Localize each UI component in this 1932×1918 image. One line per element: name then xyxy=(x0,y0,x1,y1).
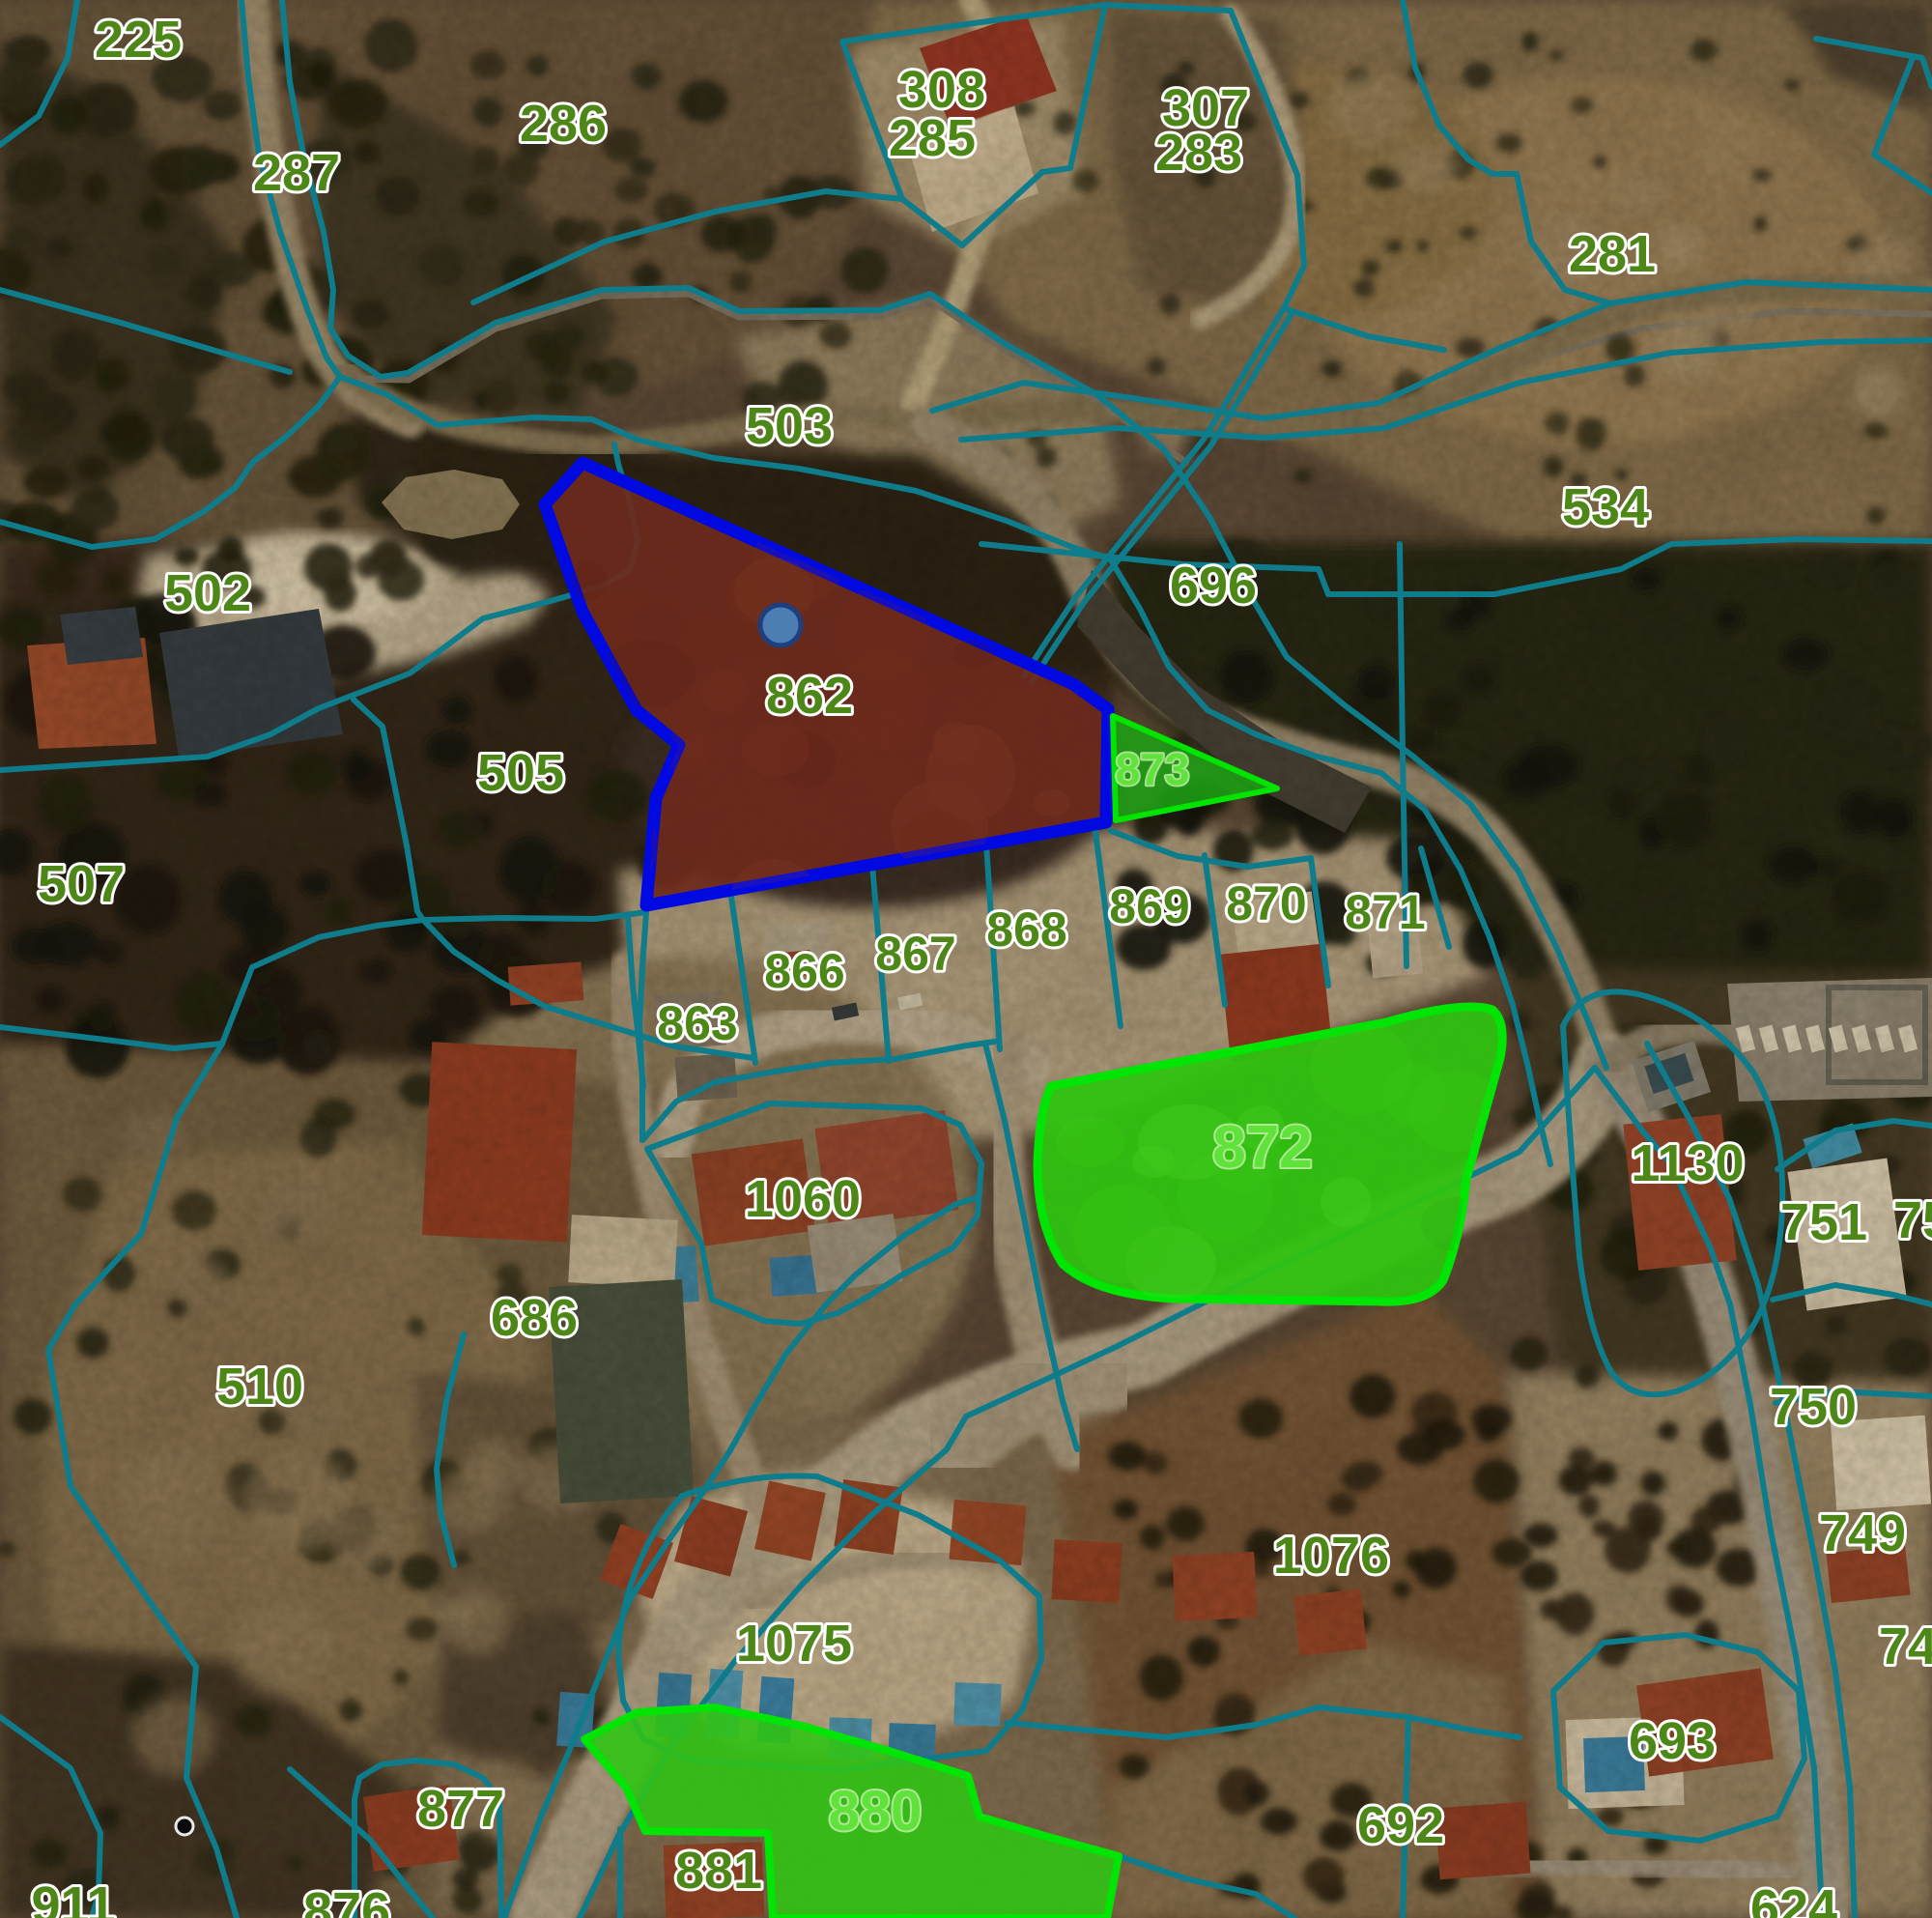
svg-text:869: 869 xyxy=(1109,879,1189,933)
svg-text:868: 868 xyxy=(986,902,1066,957)
svg-text:502: 502 xyxy=(164,564,251,622)
svg-text:867: 867 xyxy=(875,927,955,981)
svg-text:225: 225 xyxy=(95,11,182,69)
svg-text:624: 624 xyxy=(1750,1879,1837,1918)
svg-text:866: 866 xyxy=(764,944,844,998)
svg-text:696: 696 xyxy=(1170,557,1257,615)
svg-text:876: 876 xyxy=(303,1882,390,1918)
svg-text:534: 534 xyxy=(1562,478,1649,536)
svg-text:503: 503 xyxy=(746,397,833,455)
svg-text:863: 863 xyxy=(657,996,737,1050)
svg-text:862: 862 xyxy=(766,667,853,725)
svg-text:281: 281 xyxy=(1569,225,1656,283)
svg-text:507: 507 xyxy=(38,855,125,913)
svg-text:692: 692 xyxy=(1357,1796,1444,1854)
svg-text:873: 873 xyxy=(1116,744,1190,794)
svg-text:1060: 1060 xyxy=(745,1170,861,1228)
svg-text:872: 872 xyxy=(1212,1114,1312,1181)
svg-text:750: 750 xyxy=(1770,1378,1857,1436)
svg-text:870: 870 xyxy=(1226,876,1306,930)
svg-text:686: 686 xyxy=(491,1289,578,1347)
svg-text:880: 880 xyxy=(829,1780,923,1843)
svg-text:285: 285 xyxy=(889,109,976,167)
svg-text:74: 74 xyxy=(1879,1617,1932,1675)
svg-text:911: 911 xyxy=(31,1876,115,1918)
svg-text:1076: 1076 xyxy=(1273,1527,1389,1585)
svg-text:751: 751 xyxy=(1780,1193,1867,1251)
svg-text:881: 881 xyxy=(675,1842,762,1900)
svg-text:749: 749 xyxy=(1819,1504,1906,1562)
svg-text:1075: 1075 xyxy=(736,1615,852,1673)
svg-text:871: 871 xyxy=(1345,885,1425,939)
svg-text:287: 287 xyxy=(253,144,340,202)
svg-text:510: 510 xyxy=(216,1358,303,1416)
svg-text:693: 693 xyxy=(1629,1712,1716,1770)
svg-text:877: 877 xyxy=(417,1780,504,1838)
svg-text:283: 283 xyxy=(1155,124,1242,182)
svg-text:505: 505 xyxy=(477,744,564,802)
svg-text:75: 75 xyxy=(1893,1191,1932,1249)
svg-text:1130: 1130 xyxy=(1631,1134,1744,1192)
svg-text:286: 286 xyxy=(520,95,607,153)
